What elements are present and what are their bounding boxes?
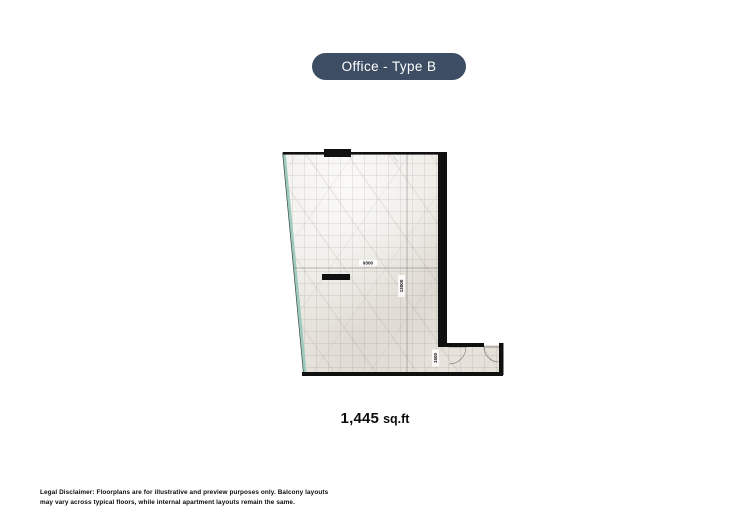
area-value: 1,445 [341,410,380,427]
svg-text:1500: 1500 [433,352,438,363]
leader-mark [393,156,398,162]
wall-bottom [302,372,503,376]
glass-wall-left-edge [283,153,304,374]
wall-interior-segment [322,274,350,280]
area-unit: sq.ft [383,412,409,426]
dimension-height: 13000 [398,275,405,297]
legal-disclaimer-line2: may vary across typical floors, while in… [40,498,340,508]
svg-text:13000: 13000 [399,279,404,292]
door-arc-right [484,347,499,362]
wall-top-door-block [324,149,351,157]
floorplan-drawing: 9300 13000 1500 [280,145,505,380]
door-arc-left [449,347,466,364]
page: Office - Type B [0,0,750,530]
dimension-corridor: 1500 [432,350,439,367]
wall-right [438,152,447,343]
svg-text:9300: 9300 [363,261,374,266]
unit-type-badge-label: Office - Type B [342,59,437,74]
floorplan: 9300 13000 1500 [280,145,505,380]
unit-type-badge[interactable]: Office - Type B [312,53,466,80]
area-label: 1,445sq.ft [0,410,750,428]
wall-corridor-right [499,343,504,375]
wall-top [283,152,447,155]
legal-disclaimer: Legal Disclaimer: Floorplans are for ill… [40,488,340,508]
wall-corridor-top [438,343,484,347]
dimension-width: 9300 [359,260,377,267]
legal-disclaimer-line1: Legal Disclaimer: Floorplans are for ill… [40,488,340,498]
glass-wall-left [284,153,305,373]
